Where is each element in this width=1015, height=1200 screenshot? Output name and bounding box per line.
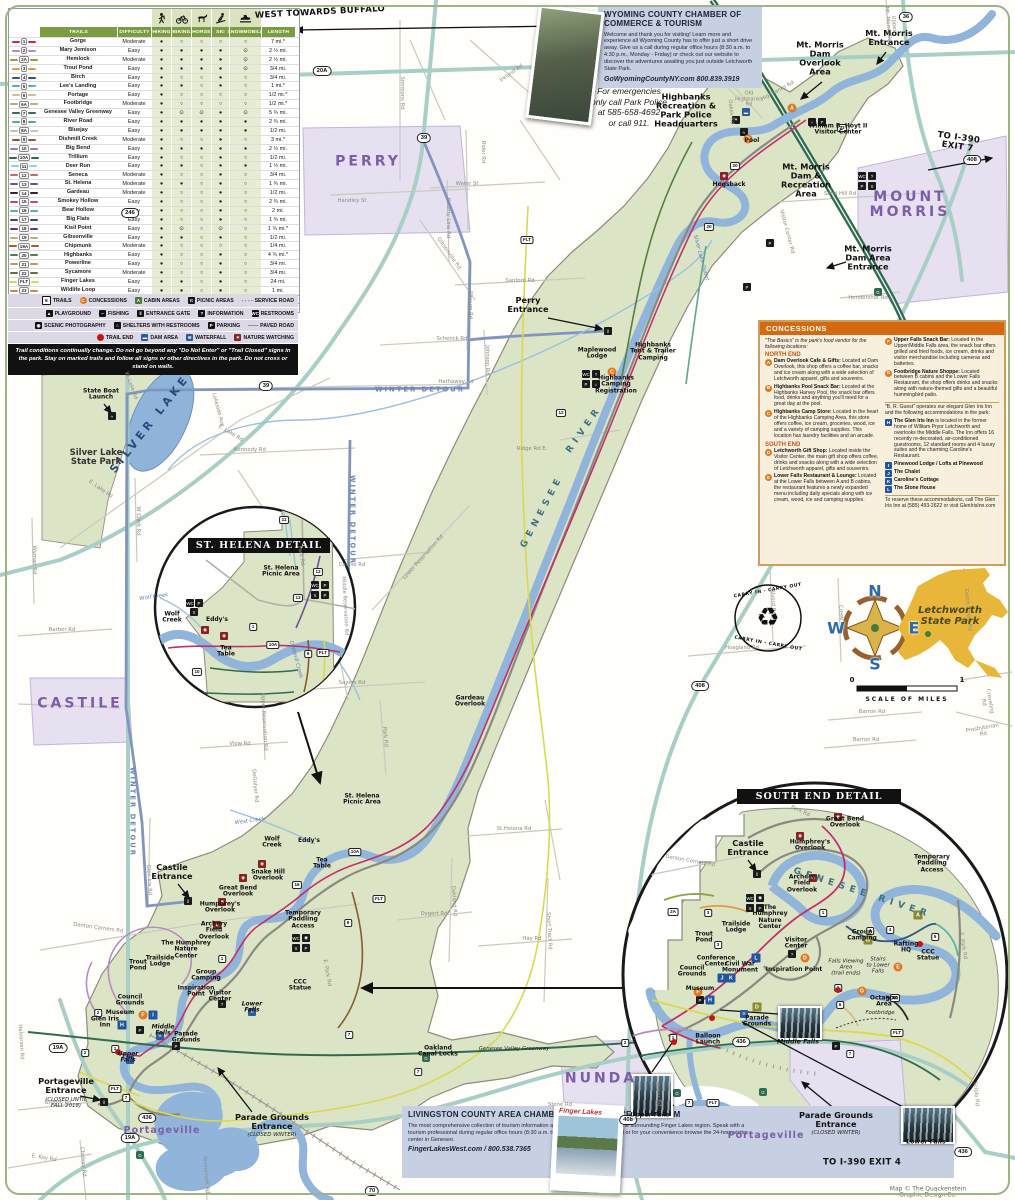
trail-status: ● xyxy=(211,269,229,277)
trail-marker: 20 xyxy=(704,223,714,231)
table-row: 5Lee's LandingEasy●●○●○1 mi.* xyxy=(9,81,299,90)
concession-item: JThe Chalet xyxy=(885,470,999,476)
f-marker: ? xyxy=(788,950,796,958)
route-shield: 436 xyxy=(732,1037,750,1047)
trail-marker: 2A xyxy=(668,908,679,916)
table-row: 3Trout PondEasy●●●●⊙3/4 mi. xyxy=(9,64,299,73)
trail-length: 1 mi.* xyxy=(261,82,295,90)
trail-status: ○ xyxy=(171,216,191,224)
wyoming-chamber-title: WYOMING COUNTY CHAMBER OF COMMERCE & TOU… xyxy=(604,11,756,29)
table-row: 8ABluejayEasy●●●●●1/2 mi. xyxy=(9,126,299,135)
table-row: 21PowerlineEasy●○○●○3/4 mi. xyxy=(9,259,299,268)
trail-name: Footbridge xyxy=(39,100,117,108)
trail-name: Birch xyxy=(39,74,117,82)
fall-marker: ≋ xyxy=(156,1032,164,1040)
letter-badge-C: C xyxy=(608,368,617,377)
trail-length: 1/4 mi. xyxy=(261,242,295,250)
f-marker: P xyxy=(766,239,774,247)
trail-swatch: 17 xyxy=(9,216,39,224)
f-marker: ? xyxy=(868,172,876,180)
trail-status: ● xyxy=(151,234,171,242)
trail-marker: 7 xyxy=(122,1094,130,1102)
trail-status: ⊙ xyxy=(171,225,191,233)
trail-name: Deer Run xyxy=(39,162,117,170)
trail-length: 2 ½ mi. xyxy=(261,56,295,64)
f-marker: ? xyxy=(218,1000,226,1008)
trail-marker: 2 xyxy=(81,1049,89,1057)
trail-marker: 10 xyxy=(192,668,202,676)
f-marker: π xyxy=(746,904,754,912)
trail-status: ● xyxy=(171,47,191,55)
trail-status: ● xyxy=(151,198,171,206)
camera-marker: ◉ xyxy=(213,921,221,929)
column-header: SKI xyxy=(211,27,229,37)
trail-name: Bluejay xyxy=(39,127,117,135)
trail-name: Trillium xyxy=(39,154,117,162)
trail-status: ○ xyxy=(229,207,261,215)
f-marker: P xyxy=(818,118,826,126)
trail-status: ● xyxy=(151,38,171,46)
trail-marker: 12 xyxy=(556,409,566,417)
trail-status: ○ xyxy=(171,251,191,259)
legend-item: 8TRAILS xyxy=(42,296,72,305)
trail-status: ○ xyxy=(229,242,261,250)
trail-swatch: 11 xyxy=(9,162,39,170)
trail-status: ○ xyxy=(191,100,211,108)
trail-length: 4 ¾ mi.* xyxy=(261,251,295,259)
trail-status: ○ xyxy=(171,74,191,82)
st-helena-detail-banner: ST. HELENA DETAIL xyxy=(188,538,330,553)
finger-lakes-brochure-image xyxy=(556,1115,619,1176)
legend-item: ✶NATURE WATCHING xyxy=(234,334,294,341)
concession-item: ADam Overlook Cafe & Gifts: Located at D… xyxy=(765,359,879,383)
trail-name: Finger Lakes xyxy=(39,278,117,286)
letter-badge-I: I xyxy=(149,1011,158,1020)
trail-name: Smokey Hollow xyxy=(39,198,117,206)
trail-marker: 3 xyxy=(704,909,712,917)
trail-status: ● xyxy=(211,216,229,224)
wyoming-chamber-website[interactable]: GoWyomingCountyNY.com 800.839.3919 xyxy=(604,76,756,83)
trail-length: 2 ¾ mi. xyxy=(261,198,295,206)
playground-icon: ▲ xyxy=(46,310,53,317)
trail-difficulty: Moderate xyxy=(117,242,151,250)
trail-warning: Trail conditions continually change. Do … xyxy=(8,344,298,375)
camera-marker: ◉ xyxy=(720,172,728,180)
trail-status: ● xyxy=(151,162,171,170)
concessions-operator-note: "B. R. Guest" operates our elegant Glen … xyxy=(885,402,999,417)
trail-marker: 7 xyxy=(345,1031,353,1039)
trail-status: ● xyxy=(151,260,171,268)
trail-status: ● xyxy=(151,251,171,259)
trail-status: ○ xyxy=(229,74,261,82)
trail-length: 2 ½ mi. xyxy=(261,145,295,153)
legend-label: RESTROOMS xyxy=(261,311,294,317)
parking-icon: P xyxy=(208,322,215,329)
legend-item: ACABIN AREAS xyxy=(135,297,180,304)
route-shield: 246 xyxy=(121,208,139,218)
trail-status: ● xyxy=(151,109,171,117)
trail-name: St. Helena xyxy=(39,180,117,188)
trail-status: ● xyxy=(211,278,229,286)
f-marker: WC xyxy=(186,599,194,607)
concession-item: ELower Falls Restaurant & Lounge: Locate… xyxy=(765,474,879,504)
trail-swatch: 6 xyxy=(9,91,39,99)
entrance-gate-icon: ‖ xyxy=(137,310,144,317)
trail-status: ● xyxy=(151,74,171,82)
trail-status: ○ xyxy=(171,242,191,250)
trail-length: 7 mi.* xyxy=(261,38,295,46)
route-shield: 39 xyxy=(417,133,431,143)
livingston-chamber-box: LIVINGSTON COUNTY AREA CHAMBER OF COMMER… xyxy=(402,1106,954,1178)
trail-status: ○ xyxy=(229,82,261,90)
trail-swatch: 20 xyxy=(9,251,39,259)
carry-in-carry-out-logo xyxy=(735,585,801,651)
trail-status: ● xyxy=(151,91,171,99)
trail-status: ● xyxy=(171,180,191,188)
camera-marker: ◉ xyxy=(201,626,209,634)
trail-status: ○ xyxy=(171,207,191,215)
f-marker: π xyxy=(292,944,300,952)
trail-marker: 11 xyxy=(279,516,289,524)
legend-rows: 8TRAILSCCONCESSIONSACABIN AREASπPICNIC A… xyxy=(8,294,298,344)
trail-status: ○ xyxy=(191,207,211,215)
trail-length: 1/2 mi.* xyxy=(261,100,295,108)
trail-status: ● xyxy=(151,100,171,108)
trail-status: ○ xyxy=(229,91,261,99)
gate-marker: ‖ xyxy=(184,897,192,905)
trail-swatch: 16 xyxy=(9,207,39,215)
gate-marker: ‖ xyxy=(604,327,612,335)
concession-item: BHighbanks Pool Snack Bar: Located at th… xyxy=(765,385,879,409)
trail-difficulty: Easy xyxy=(117,234,151,242)
trail-difficulty: Moderate xyxy=(117,100,151,108)
trail-length: 1 ¾ mi.* xyxy=(261,225,295,233)
trail-status: ● xyxy=(211,162,229,170)
trail-name: Lee's Landing xyxy=(39,82,117,90)
band-spacer xyxy=(9,9,39,27)
trail-difficulty: Easy xyxy=(117,47,151,55)
trail-status: ● xyxy=(211,171,229,179)
end-marker xyxy=(709,1015,715,1021)
table-row: 13St. HelenaModerate●●○●○1 ¾ mi. xyxy=(9,179,299,188)
legend-item: ‖ENTRANCE GATE xyxy=(137,310,190,317)
legend-label: NATURE WATCHING xyxy=(243,335,294,341)
trail-length: 3/4 mi. xyxy=(261,74,295,82)
trail-status: ○ xyxy=(229,136,261,144)
trail-status: ○ xyxy=(191,154,211,162)
table-row: 6PortageEasy●○○○○1/2 mi.* xyxy=(9,90,299,99)
table-row: 16Bear HollowEasy●○○●○2 mi. xyxy=(9,206,299,215)
trail-status: ○ xyxy=(211,38,229,46)
ski-icon xyxy=(211,9,229,27)
table-row: 4BirchEasy●○○●○3/4 mi. xyxy=(9,73,299,82)
trail-status: ○ xyxy=(229,180,261,188)
trail-status: ● xyxy=(171,127,191,135)
trail-status: ○ xyxy=(229,100,261,108)
f-marker: P xyxy=(136,1026,144,1034)
trail-name: Mary Jemison xyxy=(39,47,117,55)
horse-icon xyxy=(191,9,211,27)
trail-swatch: 9 xyxy=(9,136,39,144)
f-marker: ◉ xyxy=(302,934,310,942)
trail-marker: 7 xyxy=(414,1068,422,1076)
trail-status: ● xyxy=(151,145,171,153)
trail-marker: 9 xyxy=(344,919,352,927)
trail-name: Chipmunk xyxy=(39,242,117,250)
column-header: SNOWMOBILE xyxy=(229,27,261,37)
end-marker xyxy=(115,1049,121,1055)
nature-marker: ✶ xyxy=(732,116,740,124)
f-marker: WC xyxy=(746,894,754,902)
band-spacer xyxy=(117,9,151,27)
table-row: 22SycamoreModerate●○○●○3/4 mi. xyxy=(9,268,299,277)
route-shield: 39 xyxy=(259,381,273,391)
f-marker: π xyxy=(190,608,198,616)
table-row: 2Mary JemisonEasy●●●●⊙2 ½ mi. xyxy=(9,46,299,55)
trail-length: 1 ½ mi. xyxy=(261,162,295,170)
legend-row: TRAIL END▬DAM AREA≋WATERFALL✶NATURE WATC… xyxy=(8,332,298,344)
trail-marker: FLT xyxy=(372,895,385,903)
trail-length: 1/2 mi. xyxy=(261,154,295,162)
trail-difficulty: Easy xyxy=(117,145,151,153)
concession-badge-K: K xyxy=(885,478,892,485)
trail-status: ● xyxy=(211,145,229,153)
route-shield: 36 xyxy=(899,12,913,22)
letter-badge-G: G xyxy=(858,987,867,996)
service-road-icon: - - - - xyxy=(242,298,253,304)
trail-status: ● xyxy=(191,145,211,153)
trail-marker: FLT xyxy=(108,1085,121,1093)
trails-table-header: TRAILSDIFFICULTYHIKINGBIKINGHORSESKISNOW… xyxy=(9,27,299,37)
end-marker xyxy=(917,941,923,947)
trail-status: ⊙ xyxy=(211,225,229,233)
trail-difficulty: Easy xyxy=(117,109,151,117)
trail-length: 2 ½ mi. xyxy=(261,47,295,55)
trail-status: ○ xyxy=(191,278,211,286)
column-header: BIKING xyxy=(171,27,191,37)
trail-status: ● xyxy=(151,216,171,224)
waterfall-icon: ≋ xyxy=(186,334,193,341)
trail-swatch: FLT xyxy=(9,278,39,286)
gate-marker: ‖ xyxy=(100,1098,108,1106)
table-row: 10Big BendEasy●●●●●2 ½ mi. xyxy=(9,144,299,153)
trail-swatch: 13 xyxy=(9,180,39,188)
letter-badge-D: D xyxy=(753,1003,762,1012)
trail-status: ● xyxy=(211,207,229,215)
scenic-photography-icon: ◉ xyxy=(35,322,42,329)
trail-status: ● xyxy=(211,251,229,259)
trail-status: ● xyxy=(211,65,229,73)
route-shield: 19A xyxy=(49,1043,68,1053)
concession-item: HThe Glen Iris Inn is located in the for… xyxy=(885,419,999,460)
concession-item: FUpper Falls Snack Bar: Located in the U… xyxy=(885,338,999,368)
trail-status: ● xyxy=(229,118,261,126)
f-marker: P xyxy=(858,182,866,190)
trail-status: ⊙ xyxy=(191,109,211,117)
trail-status: ○ xyxy=(229,198,261,206)
trail-status: ○ xyxy=(229,171,261,179)
trail-difficulty: Easy xyxy=(117,154,151,162)
f-marker: ⌂ xyxy=(592,380,600,388)
trail-name: Gorge xyxy=(39,38,117,46)
trail-difficulty: Easy xyxy=(117,198,151,206)
trail-difficulty: Easy xyxy=(117,225,151,233)
route-shield: 70 xyxy=(365,1186,379,1196)
legend-item: CCONCESSIONS xyxy=(80,297,127,304)
information-icon: ? xyxy=(198,310,205,317)
wyoming-chamber-body: Welcome and thank you for visiting! Lear… xyxy=(604,32,756,73)
legend-label: SHELTERS WITH RESTROOMS xyxy=(123,323,200,329)
camera-marker: ◉ xyxy=(809,874,817,882)
table-row: 20HighbanksEasy●○○●○4 ¾ mi.* xyxy=(9,250,299,259)
trail-status: ● xyxy=(151,180,171,188)
trail-status: ⊙ xyxy=(171,109,191,117)
route-shield: 408 xyxy=(691,681,709,691)
trail-status: ● xyxy=(211,154,229,162)
trail-status: ○ xyxy=(211,91,229,99)
letter-badge-H: H xyxy=(118,1021,127,1030)
activity-icon-band xyxy=(9,9,299,27)
trail-status: ● xyxy=(151,171,171,179)
route-shield: 436 xyxy=(954,1147,972,1157)
legend-item: PPARKING xyxy=(208,322,241,329)
concession-item: DLetchworth Gift Shop: Located inside th… xyxy=(765,449,879,473)
legend-label: PICNIC AREAS xyxy=(197,298,234,304)
trail-difficulty: Easy xyxy=(117,278,151,286)
gvg-marker: G xyxy=(874,288,882,296)
concessions-reserve-note: To reserve these accommodations, call Th… xyxy=(885,495,999,510)
trail-status: ○ xyxy=(171,136,191,144)
legend-item: ⌂SHELTERS WITH RESTROOMS xyxy=(114,322,200,329)
trail-status: ● xyxy=(171,56,191,64)
table-row: 19AChipmunkModerate●○○○○1/4 mi. xyxy=(9,241,299,250)
trail-swatch: 15 xyxy=(9,198,39,206)
trail-status: ● xyxy=(211,47,229,55)
trail-marker: 10A xyxy=(266,641,279,649)
table-row: 10ATrilliumEasy●○○●○1/2 mi. xyxy=(9,153,299,162)
trail-status: ● xyxy=(171,162,191,170)
trail-difficulty: Moderate xyxy=(117,56,151,64)
trail-status: ○ xyxy=(229,38,261,46)
f-marker: ⌂ xyxy=(808,118,816,126)
scale-bar xyxy=(857,686,957,691)
trail-status: ● xyxy=(151,154,171,162)
concession-badge-C: C xyxy=(765,410,772,417)
trail-marker: 16 xyxy=(292,881,302,889)
trail-length: 1 ¾ mi. xyxy=(261,216,295,224)
trail-difficulty: Moderate xyxy=(117,38,151,46)
letter-badge-E: E xyxy=(894,963,903,972)
fall-marker: ≋ xyxy=(126,1056,134,1064)
legend-label: CABIN AREAS xyxy=(144,298,180,304)
legend-item: ▲PLAYGROUND xyxy=(46,310,91,317)
trail-status: ○ xyxy=(191,198,211,206)
concessions-header: CONCESSIONS xyxy=(760,322,1004,335)
trail-status: ○ xyxy=(171,38,191,46)
band-spacer xyxy=(39,9,117,27)
trail-status: ○ xyxy=(191,225,211,233)
camera-marker: ◉ xyxy=(834,813,842,821)
restrooms-icon: WC xyxy=(252,310,259,317)
trail-status: ○ xyxy=(191,242,211,250)
concession-badge-F: F xyxy=(885,338,892,345)
trail-status: ● xyxy=(151,207,171,215)
f-marker: WC xyxy=(582,370,590,378)
gvg-marker: G xyxy=(673,1089,681,1097)
fall-marker: ≋ xyxy=(740,1010,748,1018)
trail-length: 3 mi.* xyxy=(261,136,295,144)
f-marker: P xyxy=(302,944,310,952)
trail-status: ○ xyxy=(191,189,211,197)
header-spacer xyxy=(9,27,39,37)
trail-status: ● xyxy=(171,118,191,126)
legend-label: CONCESSIONS xyxy=(89,298,127,304)
trail-difficulty: Moderate xyxy=(117,180,151,188)
trail-marker: 10A xyxy=(348,848,361,856)
trail-swatch: 19 xyxy=(9,234,39,242)
letter-badge-A: A xyxy=(914,911,923,920)
trail-status: ● xyxy=(151,136,171,144)
trail-marker: 1 xyxy=(218,955,226,963)
table-row: 19GibsonvilleEasy●●○●○1/2 mi. xyxy=(9,233,299,242)
trail-swatch: 18 xyxy=(9,225,39,233)
trail-swatch: 1 xyxy=(9,38,39,46)
legend-label: SCENIC PHOTOGRAPHY xyxy=(44,323,106,329)
route-shield: 436 xyxy=(138,1113,156,1123)
table-row: 17Big FlatsEasy●○○●○1 ¾ mi. xyxy=(9,215,299,224)
trail-difficulty: Moderate xyxy=(117,189,151,197)
legend-item: πPICNIC AREAS xyxy=(188,297,234,304)
concessions-col1: "The Basics" is the park's food vendor f… xyxy=(765,338,879,512)
dam-area-icon: ▬ xyxy=(141,334,148,341)
trail-status: ○ xyxy=(229,251,261,259)
trail-status: ○ xyxy=(171,91,191,99)
trail-length: 1/2 mi. xyxy=(261,189,295,197)
trail-status: ○ xyxy=(171,100,191,108)
map-legend: 8TRAILSCCONCESSIONSACABIN AREASπPICNIC A… xyxy=(8,294,298,375)
concessions-col2: FUpper Falls Snack Bar: Located in the U… xyxy=(885,338,999,512)
trail-length: 24 mi. xyxy=(261,278,295,286)
trail-status: ○ xyxy=(191,82,211,90)
table-row: 11Deer RunEasy●●○●●1 ½ mi. xyxy=(9,161,299,170)
trail-status: ● xyxy=(229,127,261,135)
legend-row: ▲PLAYGROUND~FISHING‖ENTRANCE GATE?INFORM… xyxy=(8,308,298,320)
trail-marker: 2 xyxy=(621,1039,629,1047)
trail-difficulty: Easy xyxy=(117,74,151,82)
trail-difficulty: Easy xyxy=(117,260,151,268)
trail-name: Gibsonville xyxy=(39,234,117,242)
trail-marker: FLT xyxy=(890,1029,903,1037)
trail-marker: 4 xyxy=(886,926,894,934)
trail-length: 3/4 mi. xyxy=(261,65,295,73)
trail-status: ● xyxy=(229,162,261,170)
legend-item: ?INFORMATION xyxy=(198,310,243,317)
legend-label: WATERFALL xyxy=(195,335,226,341)
trail-swatch: 12 xyxy=(9,171,39,179)
trail-status: ● xyxy=(191,118,211,126)
trail-status: ○ xyxy=(211,100,229,108)
trail-end-icon xyxy=(97,334,104,341)
trail-status: ○ xyxy=(171,198,191,206)
trail-status: ● xyxy=(211,234,229,242)
trail-marker: 2 xyxy=(94,1009,102,1017)
f-marker: WC xyxy=(858,172,866,180)
trail-status: ● xyxy=(211,189,229,197)
trail-status: ● xyxy=(211,127,229,135)
trail-swatch: 21 xyxy=(9,260,39,268)
letter-badge-L: L xyxy=(752,954,761,963)
trail-status: ○ xyxy=(191,136,211,144)
